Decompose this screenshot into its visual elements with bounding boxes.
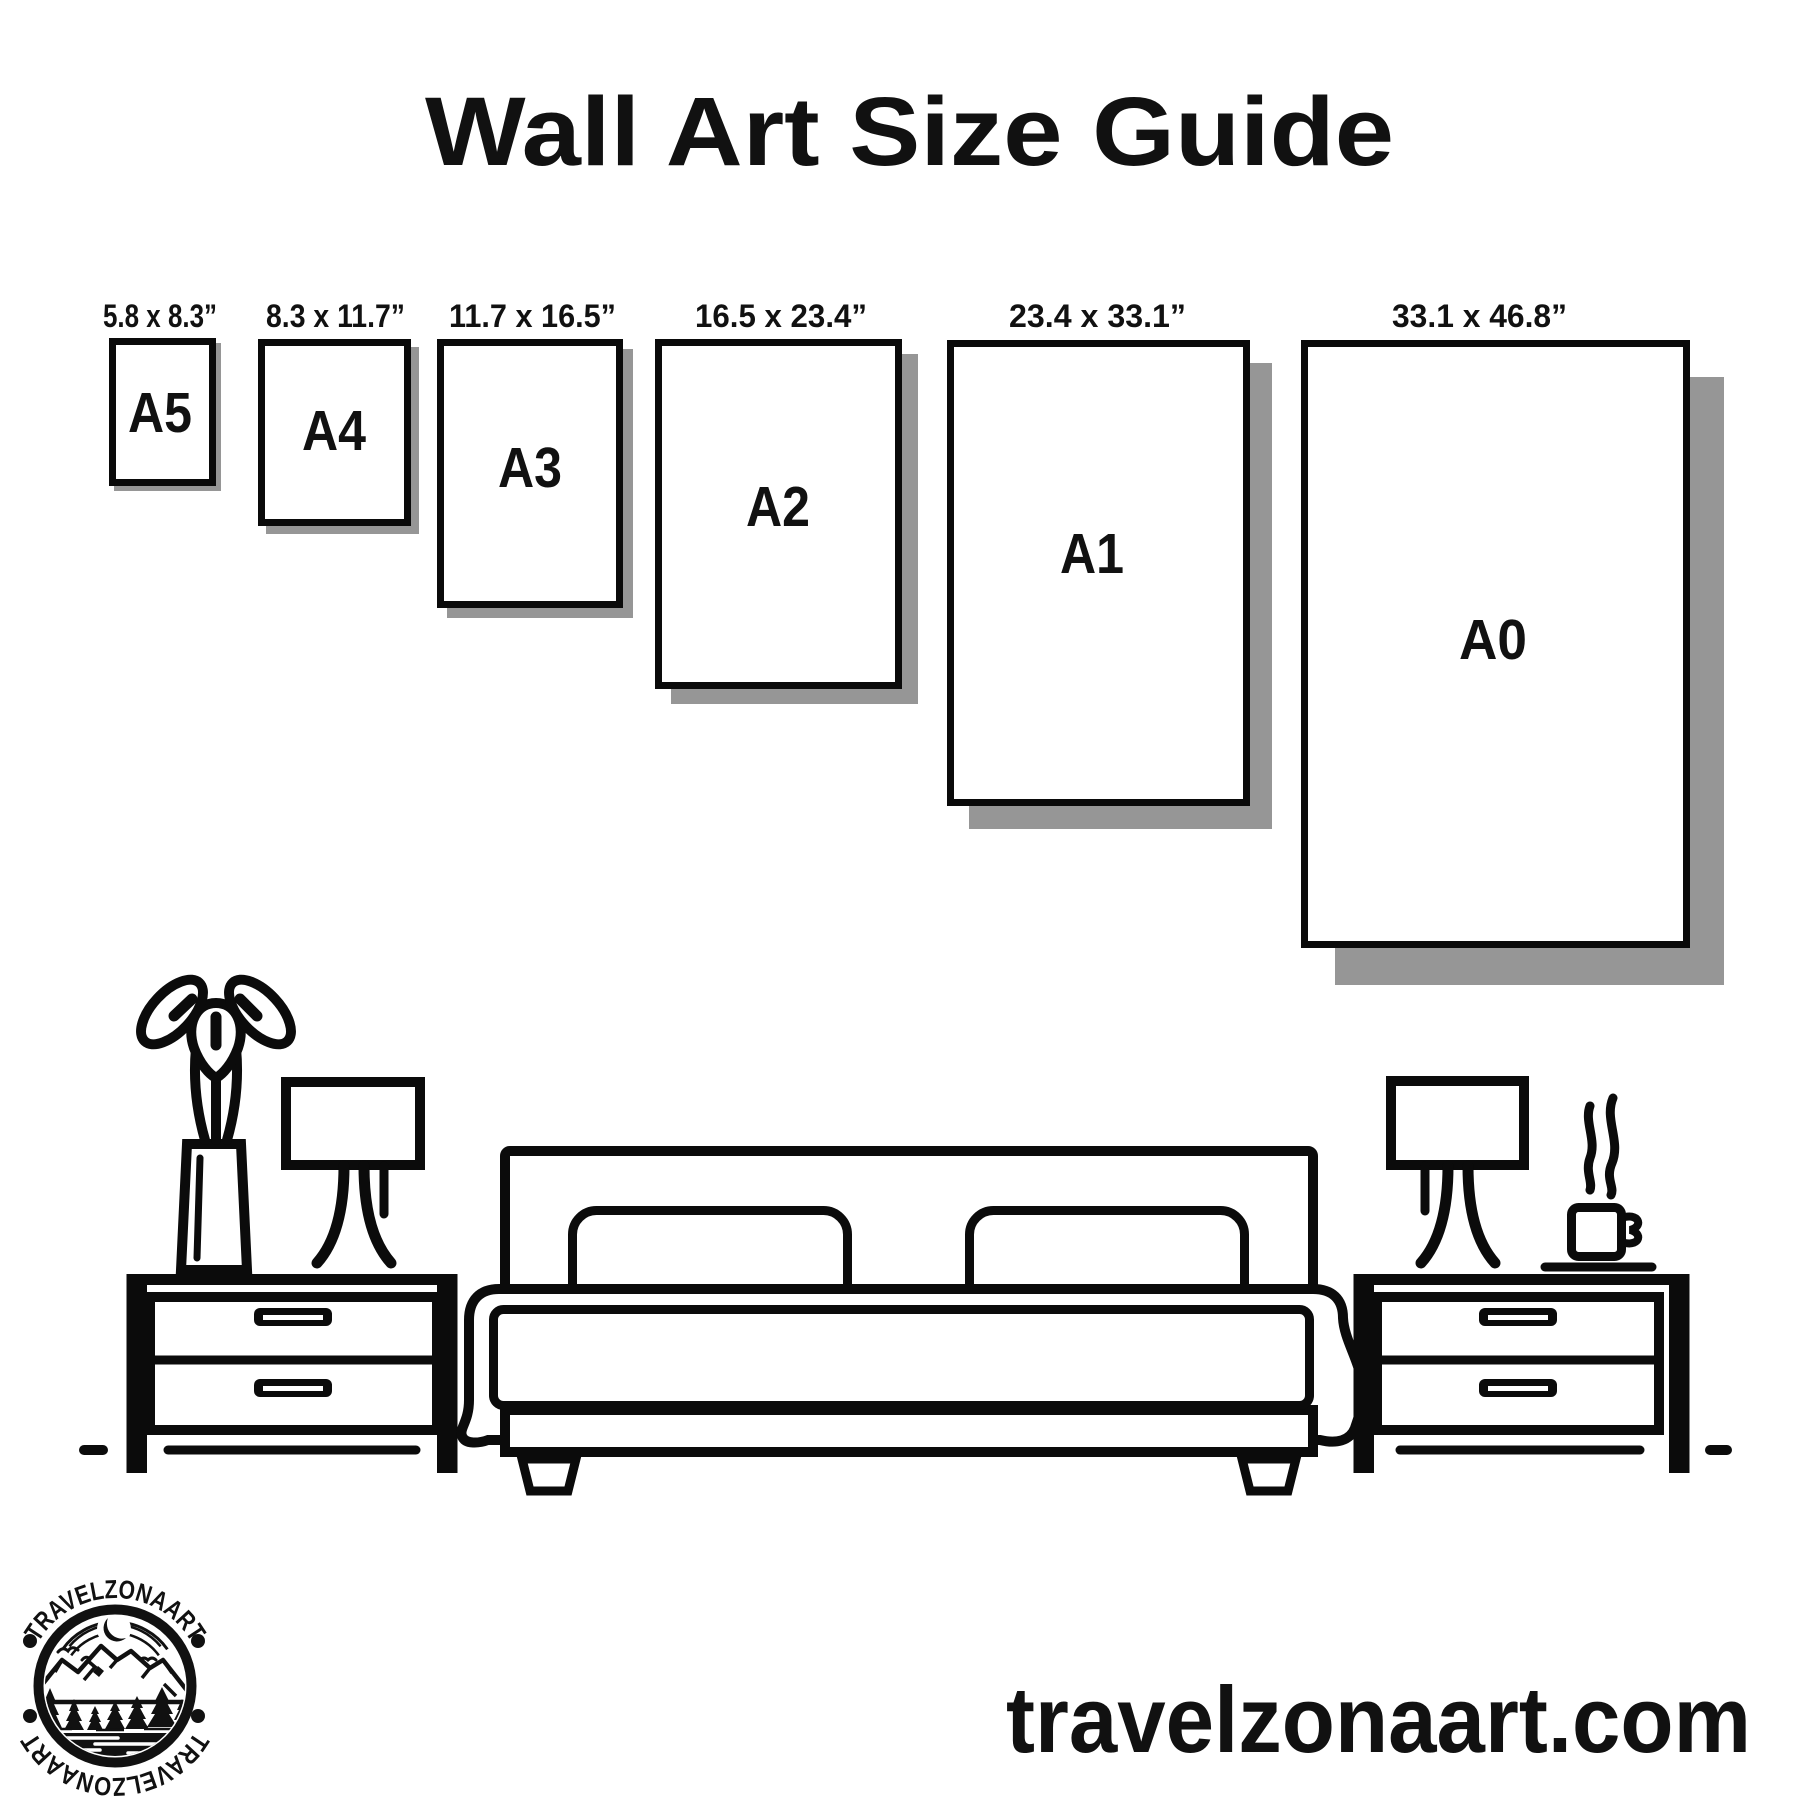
svg-text:A0: A0: [1459, 608, 1527, 672]
svg-text:travelzonaart.com: travelzonaart.com: [1006, 1667, 1751, 1772]
svg-text:A4: A4: [302, 399, 366, 463]
svg-text:A1: A1: [1060, 522, 1124, 586]
svg-text:11.7 x 16.5”: 11.7 x 16.5”: [449, 298, 616, 334]
svg-text:Wall Art Size Guide: Wall Art Size Guide: [425, 77, 1394, 186]
svg-text:16.5 x 23.4”: 16.5 x 23.4”: [695, 298, 867, 334]
svg-text:23.4 x 33.1”: 23.4 x 33.1”: [1009, 298, 1186, 334]
svg-text:A3: A3: [498, 436, 562, 500]
svg-text:5.8 x 8.3”: 5.8 x 8.3”: [103, 298, 217, 334]
svg-text:A5: A5: [128, 381, 192, 445]
svg-text:A2: A2: [746, 475, 810, 539]
svg-text:8.3 x 11.7”: 8.3 x 11.7”: [266, 298, 405, 334]
svg-text:33.1 x 46.8”: 33.1 x 46.8”: [1392, 298, 1567, 334]
